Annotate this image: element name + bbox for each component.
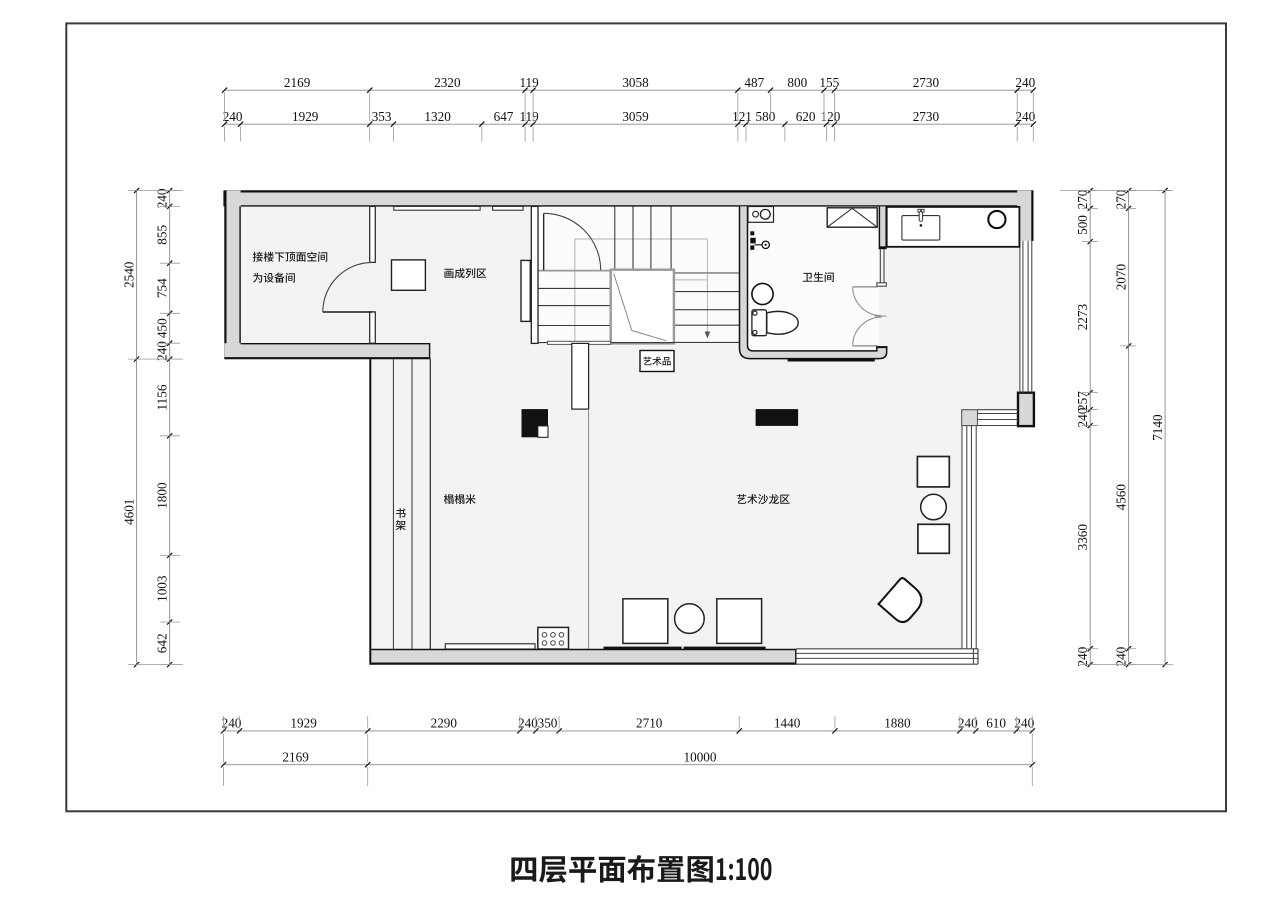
svg-text:7140: 7140 <box>1150 414 1165 441</box>
svg-text:4601: 4601 <box>121 499 136 525</box>
svg-text:855: 855 <box>155 225 170 245</box>
svg-text:3059: 3059 <box>622 109 649 124</box>
svg-text:119: 119 <box>519 75 539 90</box>
svg-text:240: 240 <box>155 341 170 361</box>
svg-text:240: 240 <box>1075 646 1090 666</box>
svg-text:2070: 2070 <box>1113 264 1128 291</box>
svg-text:2710: 2710 <box>636 716 663 731</box>
svg-text:240: 240 <box>1015 75 1035 90</box>
svg-text:270: 270 <box>1113 189 1128 209</box>
svg-text:270: 270 <box>1075 189 1090 209</box>
svg-text:3360: 3360 <box>1075 524 1090 551</box>
svg-text:2320: 2320 <box>434 75 461 90</box>
svg-text:1156: 1156 <box>155 384 170 410</box>
svg-text:2273: 2273 <box>1075 304 1090 331</box>
svg-text:2730: 2730 <box>913 75 940 90</box>
svg-text:240: 240 <box>1113 646 1128 666</box>
svg-text:642: 642 <box>155 633 170 653</box>
svg-text:1880: 1880 <box>884 716 911 731</box>
svg-text:800: 800 <box>787 75 807 90</box>
svg-text:155: 155 <box>819 75 839 90</box>
svg-text:620: 620 <box>796 109 816 124</box>
svg-text:2169: 2169 <box>282 750 309 765</box>
svg-text:647: 647 <box>494 109 514 124</box>
svg-text:2730: 2730 <box>913 109 940 124</box>
svg-text:2169: 2169 <box>284 75 311 90</box>
svg-text:487: 487 <box>744 75 764 90</box>
svg-text:119: 119 <box>519 109 539 124</box>
svg-text:4560: 4560 <box>1113 484 1128 511</box>
svg-text:353: 353 <box>372 109 392 124</box>
svg-text:1929: 1929 <box>290 716 317 731</box>
svg-text:240: 240 <box>1075 407 1090 427</box>
svg-text:2290: 2290 <box>431 716 458 731</box>
svg-text:500: 500 <box>1075 215 1090 235</box>
svg-text:1800: 1800 <box>155 482 170 509</box>
svg-text:754: 754 <box>155 278 170 298</box>
svg-text:10000: 10000 <box>684 750 717 765</box>
svg-text:240: 240 <box>155 188 170 208</box>
svg-text:2540: 2540 <box>121 261 136 288</box>
svg-text:350: 350 <box>538 716 558 731</box>
svg-text:240: 240 <box>1014 716 1034 731</box>
svg-text:240: 240 <box>1015 109 1035 124</box>
svg-text:240: 240 <box>958 716 978 731</box>
svg-text:120: 120 <box>821 109 841 124</box>
svg-text:580: 580 <box>756 109 776 124</box>
svg-text:240: 240 <box>222 716 242 731</box>
svg-text:1929: 1929 <box>292 109 319 124</box>
svg-text:450: 450 <box>155 318 170 338</box>
svg-text:1320: 1320 <box>424 109 451 124</box>
svg-text:1003: 1003 <box>155 575 170 602</box>
svg-text:240: 240 <box>223 109 243 124</box>
svg-text:1440: 1440 <box>774 716 801 731</box>
svg-text:121: 121 <box>732 109 752 124</box>
svg-text:610: 610 <box>986 716 1006 731</box>
svg-text:3058: 3058 <box>622 75 649 90</box>
svg-text:240: 240 <box>518 716 538 731</box>
